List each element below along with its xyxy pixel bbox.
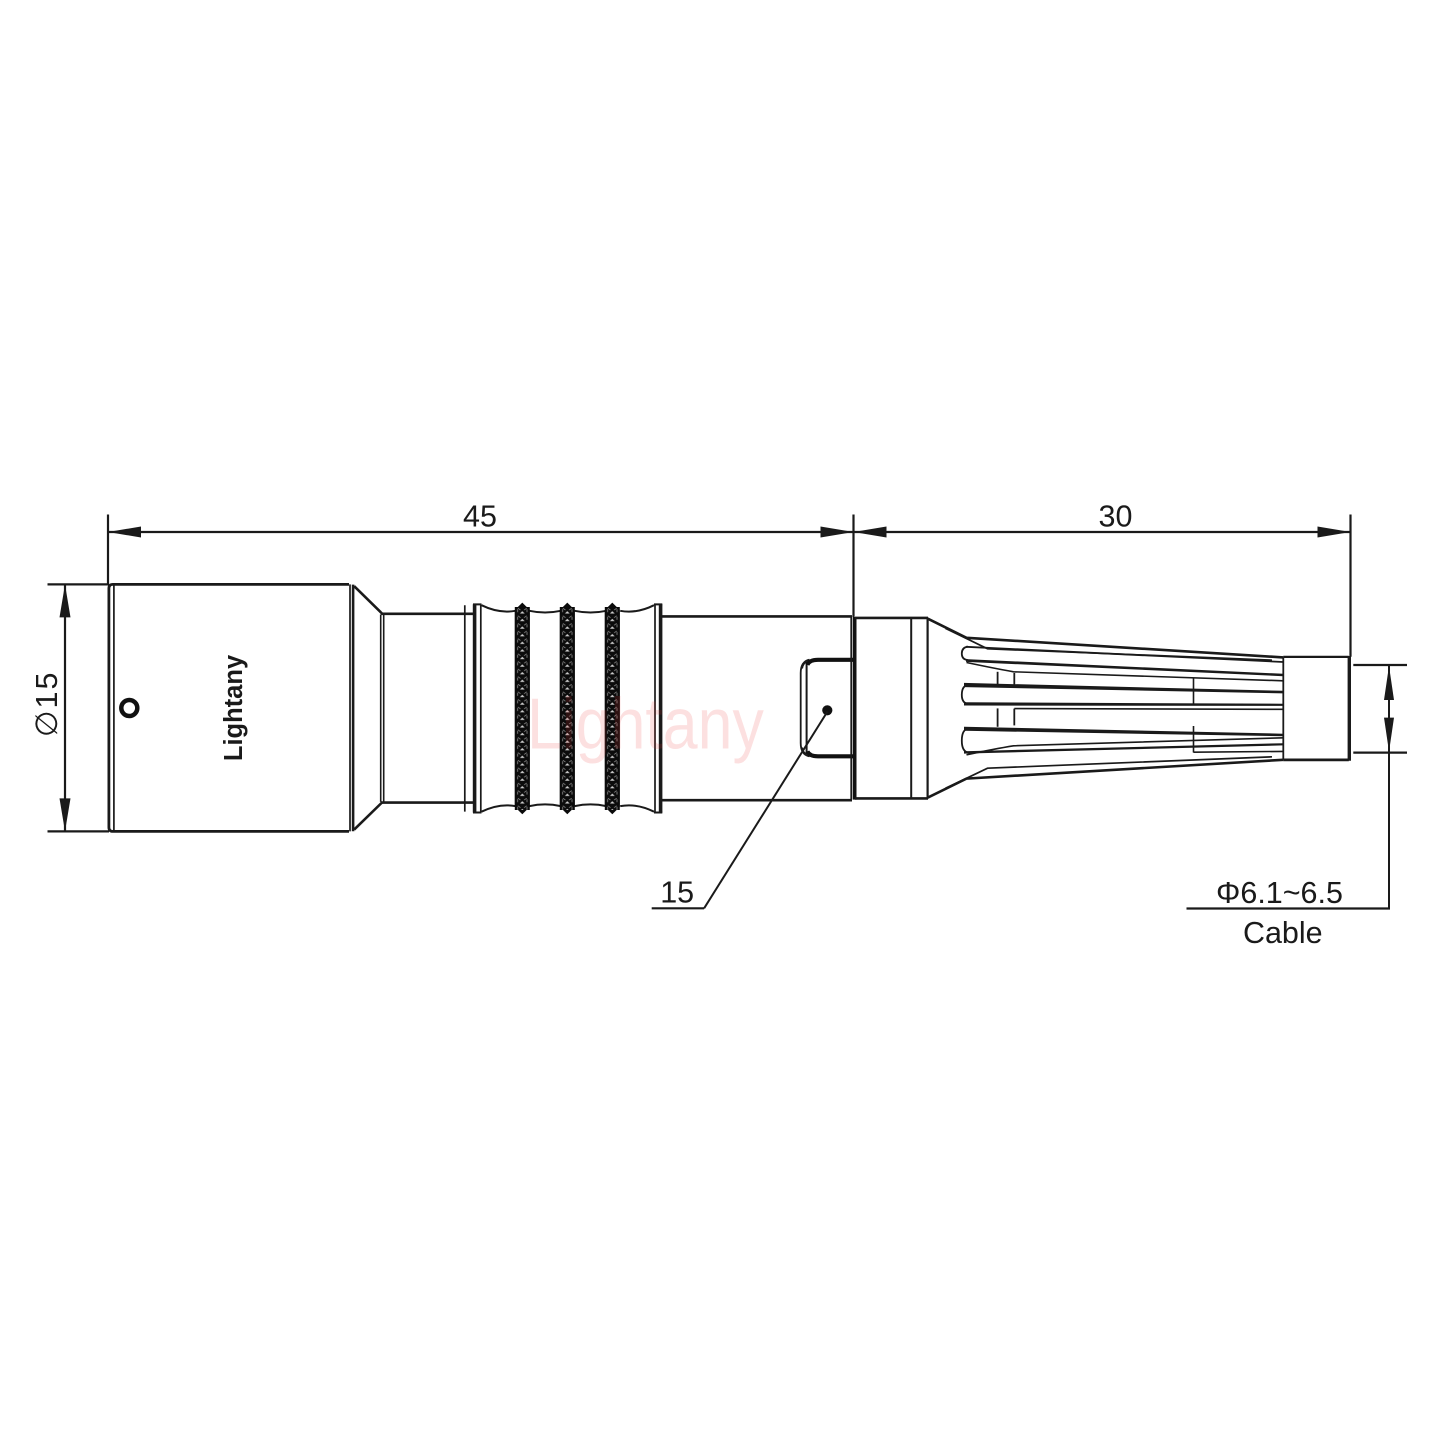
svg-text:30: 30 [1099,500,1133,534]
svg-text:Lightany: Lightany [220,654,248,761]
svg-text:45: 45 [463,500,497,534]
svg-text:Lightany: Lightany [527,684,764,764]
svg-text:Φ6.1~6.5: Φ6.1~6.5 [1216,876,1343,910]
svg-text:15: 15 [660,876,694,910]
svg-text:Cable: Cable [1243,916,1323,950]
svg-text:∅15: ∅15 [30,671,64,738]
